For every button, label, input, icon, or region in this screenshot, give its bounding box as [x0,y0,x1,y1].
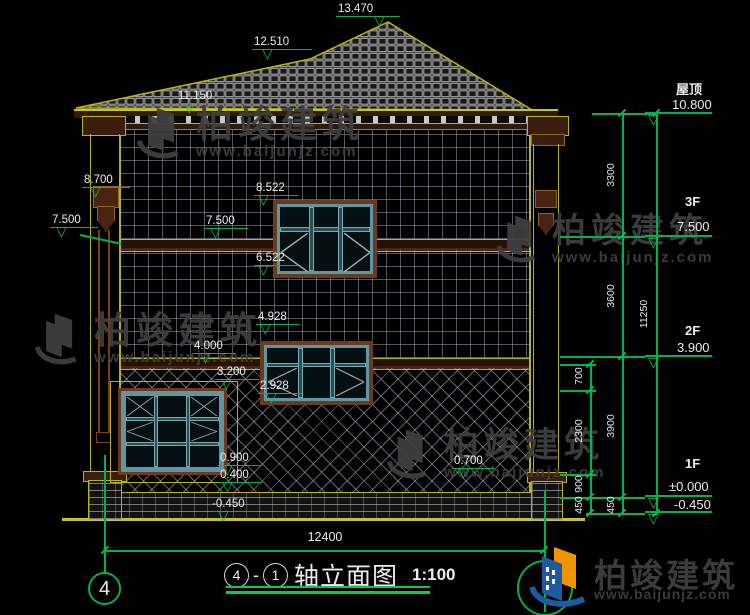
right-column-capital [527,116,569,136]
watermark: 柏竣建筑 www.baijunjz.com [136,104,364,162]
window-1f-mullion-left [154,396,158,467]
watermark-url: www.baijunjz.com [196,144,364,160]
casement-open-right-icon [344,233,370,272]
casement-open-right-icon [336,368,364,396]
level-value-roof: 10.800 [672,97,712,112]
dim-connector [560,236,645,238]
dim-chain-middle [622,113,624,514]
brand-logo-watermark-icon [34,310,86,368]
right-bracket [535,190,557,208]
ground-line [62,518,585,521]
brand-logo-watermark-icon [496,212,544,266]
window-1f-rail-bottom [126,442,219,446]
casement-open-left-icon [127,422,153,441]
casement-open-right-icon [191,422,217,441]
elevation-marker-w3-head: 8.522 ▽ [254,182,298,205]
dim-value-total-height: 11250 [638,292,650,336]
window-1f-mullion-right [186,396,190,467]
x-brace-icon [191,397,217,416]
x-brace-icon [127,397,153,416]
title-axis-start: 4 [224,563,249,588]
level-value-ground: -0.450 [674,497,711,512]
level-triangle-icon: ▽ [648,356,659,368]
window-1f-frame [121,391,224,472]
level-name-roof: 屋顶 [676,79,702,98]
brand-logo-watermark-icon [386,426,436,482]
right-pedestal [531,481,563,520]
dim-value: 450 [573,483,585,527]
window-3f-mullion-right [338,207,343,271]
elevation-marker-peak: 13.470 ▽ [336,3,400,26]
level-value-2f: 3.900 [677,340,710,355]
elevation-marker-w2-sill: 2.928 ▽ [258,380,302,403]
watermark-url: www.baijunjz.com [552,250,713,266]
level-value-1f: ±0.000 [669,479,709,494]
brand-logo-icon [528,543,592,611]
plinth [116,492,547,520]
level-triangle-icon: ▽ [648,236,659,248]
elevation-marker-f2-band: 4.000 ▽ [192,340,236,363]
level-triangle-icon: ▽ [648,113,659,125]
level-triangle-icon: ▽ [648,512,659,524]
window-2f-mullion-right [330,348,335,398]
title-scale: 1:100 [412,565,455,585]
elevation-marker-f3-band: 7.500 ▽ [204,215,248,238]
title-underline [226,586,430,588]
elevation-marker-porch-band: 7.500 ▽ [50,214,98,237]
elevation-marker-plinth-top: 0.400 ▽ [218,469,262,492]
dim-value: 450 [605,483,617,527]
level-name-3f: 3F [685,194,700,209]
dim-value: 3900 [605,404,617,448]
elevation-marker-ground: -0.450 ▽ [210,498,258,521]
level-name-1f: 1F [685,456,700,471]
window-1f [118,388,227,475]
elevation-marker-w1-head: 3.200 ▽ [215,366,259,389]
brand-url: www.baijunjz.com [594,586,731,602]
level-name-2f: 2F [685,323,700,338]
dim-value: 3300 [605,153,617,197]
elevation-marker-w2-head: 4.928 ▽ [256,311,300,334]
title-underline [226,591,430,594]
elevation-drawing: 柏竣建筑 www.baijunjz.com 柏竣建筑 www.baijunjz.… [0,0,750,615]
window-3f-mullion-left [309,207,314,271]
dim-value: 3600 [605,274,617,318]
elevation-marker-gutter: 8.700 ▽ [82,174,130,197]
level-value-3f: 7.500 [677,219,710,234]
watermark-company: 柏竣建筑 [94,312,262,350]
title-axis-end: 1 [263,563,288,588]
left-column-capital [82,116,126,136]
dim-value-total-width: 12400 [295,530,355,544]
width-dimension-line [105,550,545,552]
elevation-marker-w3-sill: 6.522 ▽ [254,252,298,275]
elevation-marker-ridge: 12.510 ▽ [252,36,312,59]
window-1f-rail-top [126,417,219,421]
title-separator: - [253,565,259,586]
elevation-marker-eaves: 11.150 ▽ [176,90,232,113]
level-triangle-icon: ▽ [374,14,400,26]
watermark-url: www.baijunjz.com [94,350,262,366]
elevation-marker-right-base: 0.700 ▽ [452,455,494,478]
dim-value: 700 [573,354,585,398]
window-3f-transom [280,227,370,232]
axis-extension-left [104,455,106,572]
window-2f-transom [267,363,366,367]
dim-chain-outer [656,113,658,514]
level-triangle-icon: ▽ [648,496,659,508]
axis-bubble-4: 4 [88,572,121,605]
dim-value: 2300 [573,409,585,453]
left-downspout-shoe [96,432,111,443]
